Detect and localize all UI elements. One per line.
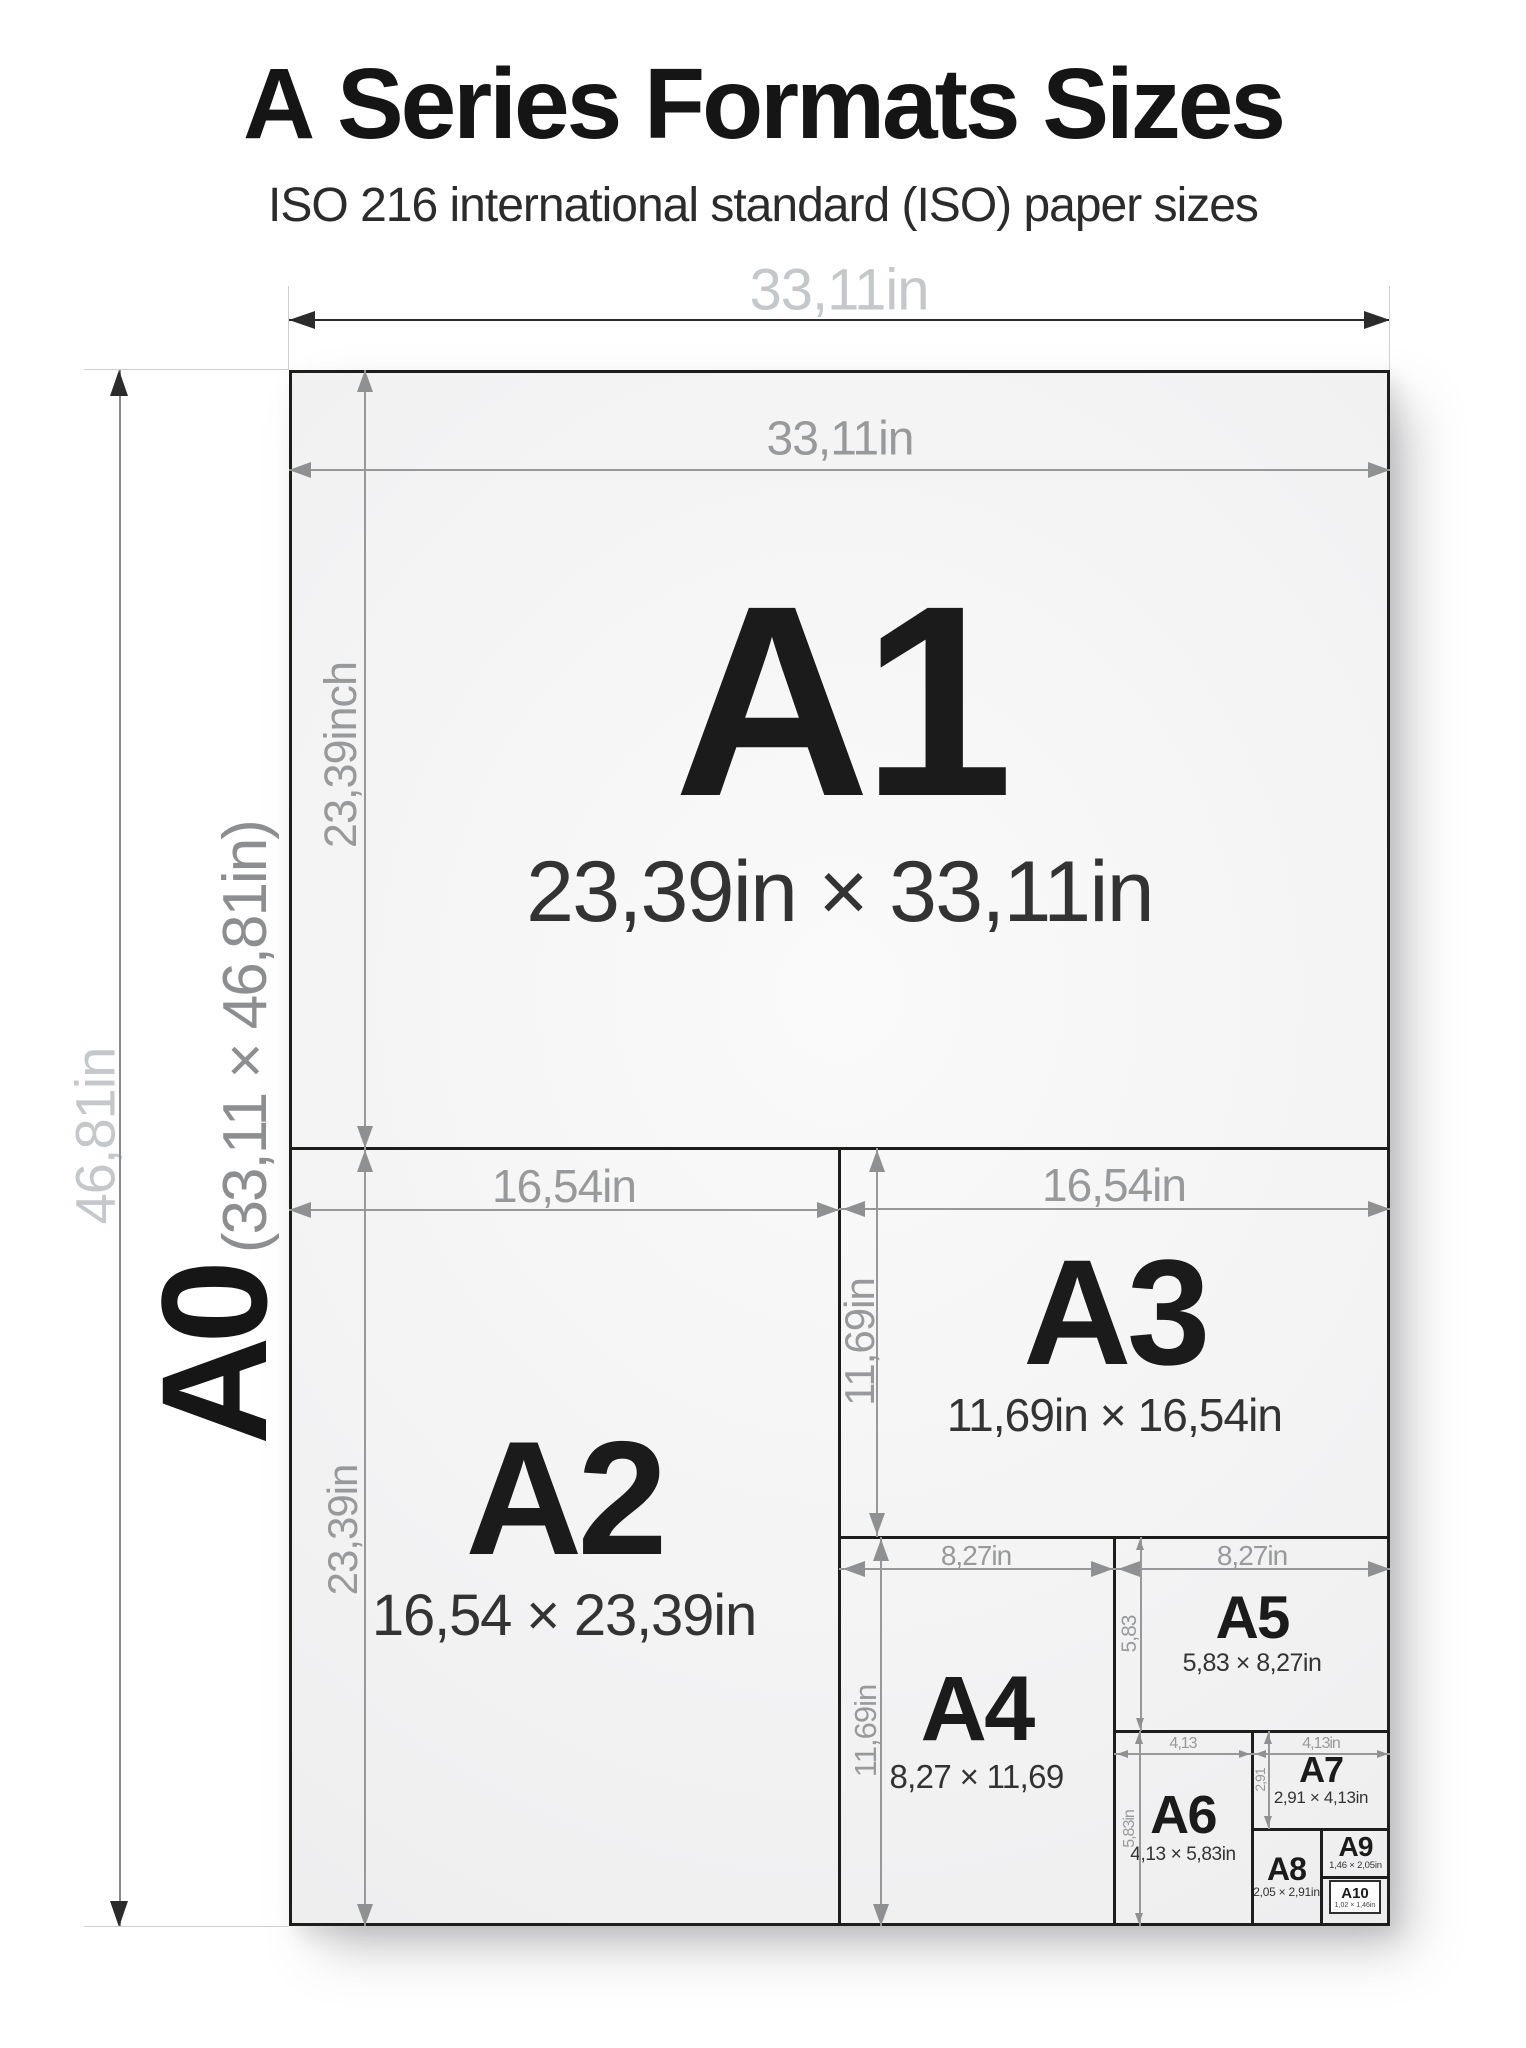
arrow-down-icon (357, 1904, 373, 1926)
a7-height-dim-label: 2,91 (1252, 1768, 1268, 1791)
arrow-down-icon (1136, 1718, 1144, 1729)
a6-height-dim-line (1139, 1731, 1141, 1926)
a3-code: A3 (1023, 1243, 1206, 1381)
arrow-right-icon (1377, 1750, 1388, 1758)
a0-size-text: (33,11 × 46,81in) (215, 821, 277, 1253)
a6-width-dim-line (1114, 1753, 1252, 1755)
arrow-down-icon (1264, 1816, 1272, 1827)
a7-width-dim-line (1252, 1753, 1390, 1755)
a3-width-dim-line (839, 1208, 1390, 1210)
arrow-left-icon (1117, 1750, 1128, 1758)
a9-code: A9 (1338, 1834, 1372, 1860)
a1-width-dim-label: 33,11in (767, 412, 914, 467)
a6-height-dim-label: 5,83in (1121, 1810, 1139, 1848)
a1-height-dim-label: 23,39inch (315, 662, 367, 848)
arrow-down-icon (357, 1126, 373, 1148)
a5-height-dim-label: 5,83 (1118, 1616, 1142, 1653)
a-series-diagram: A Series Formats Sizes ISO 216 internati… (0, 0, 1526, 2048)
a10-region: A10 1,02 × 1,46in (1329, 1880, 1381, 1914)
a7-width-dim-label: 4,13in (1302, 1735, 1340, 1753)
arrow-right-icon (1091, 1561, 1113, 1577)
a2-region: A2 16,54 × 23,39in (289, 1148, 839, 1926)
arrow-right-icon (1239, 1750, 1250, 1758)
title-letter-a: A (243, 48, 312, 160)
arrow-left-icon (289, 1202, 311, 1218)
a2-width-dim-line (289, 1209, 839, 1211)
extension-line (84, 369, 289, 370)
a6-code: A6 (1150, 1791, 1216, 1841)
arrow-up-icon (873, 1539, 889, 1561)
arrow-left-icon (289, 462, 311, 478)
a8-region: A8 2,05 × 2,91in (1252, 1829, 1321, 1926)
a8-code: A8 (1267, 1855, 1306, 1884)
a2-size-text: 16,54 × 23,39in (372, 1583, 756, 1650)
a5-size-text: 5,83 × 8,27in (1183, 1649, 1322, 1678)
a1-size-text: 23,39in × 33,11in (526, 843, 1153, 942)
arrow-left-icon (843, 1561, 865, 1577)
arrow-left-icon (843, 1201, 865, 1217)
a1-region: A1 23,39in × 33,11in (289, 370, 1390, 1148)
a0-height-dim-label: 46,81in (63, 1048, 128, 1225)
a7-code: A7 (1299, 1753, 1343, 1786)
title-rest: Series Formats Sizes (312, 48, 1283, 160)
arrow-left-icon (289, 311, 315, 329)
a0-width-dim-label: 33,11in (750, 257, 929, 324)
a2-code: A2 (465, 1424, 662, 1573)
a0-width-dim-line (289, 319, 1390, 321)
a0-code: A0 (139, 1267, 289, 1445)
a4-height-dim-line (880, 1537, 882, 1926)
arrow-down-icon (869, 1513, 885, 1535)
arrow-left-icon (1255, 1750, 1266, 1758)
extension-line (84, 1926, 289, 1927)
a1-code: A1 (674, 576, 1005, 826)
a6-width-dim-label: 4,13 (1169, 1735, 1196, 1753)
arrow-down-icon (873, 1904, 889, 1926)
arrow-down-icon (110, 1901, 128, 1927)
a2-width-dim-label: 16,54in (492, 1159, 636, 1213)
a3-size-text: 11,69in × 16,54in (947, 1389, 1282, 1442)
a4-height-dim-label: 11,69in (848, 1685, 884, 1777)
arrow-up-icon (1136, 1539, 1144, 1550)
arrow-up-icon (357, 1150, 373, 1172)
arrow-left-icon (1118, 1561, 1140, 1577)
a1-width-dim-line (289, 469, 1390, 471)
arrow-down-icon (1135, 1913, 1143, 1924)
a3-height-dim-line (876, 1148, 878, 1537)
arrow-up-icon (110, 370, 128, 396)
a8-size-text: 2,05 × 2,91in (1253, 1886, 1320, 1900)
a1-height-dim-line (364, 370, 366, 1148)
arrow-up-icon (869, 1150, 885, 1172)
arrow-right-icon (1368, 462, 1390, 478)
a3-width-dim-label: 16,54in (1042, 1158, 1186, 1212)
a4-size-text: 8,27 × 11,69 (889, 1758, 1063, 1796)
arrow-right-icon (1368, 1561, 1390, 1577)
arrow-up-icon (357, 370, 373, 392)
a9-size-text: 1,46 × 2,05in (1329, 1861, 1382, 1872)
a5-height-dim-line (1140, 1537, 1142, 1731)
a0-height-dim-line (119, 370, 121, 1927)
a10-size-text: 1,02 × 1,46in (1335, 1902, 1376, 1909)
a5-width-dim-line (1114, 1568, 1390, 1570)
page-title: A Series Formats Sizes (0, 52, 1526, 157)
arrow-right-icon (817, 1202, 839, 1218)
a6-size-text: 4,13 × 5,83in (1130, 1844, 1235, 1866)
a9-region: A9 1,46 × 2,05in (1321, 1829, 1390, 1877)
a7-height-dim-line (1268, 1731, 1270, 1829)
a4-code: A4 (920, 1667, 1032, 1752)
page-subtitle: ISO 216 international standard (ISO) pap… (0, 178, 1526, 233)
a2-height-dim-line (364, 1148, 366, 1926)
a10-code: A10 (1341, 1886, 1369, 1901)
a0-series-label: A0 (33,11 × 46,81in) (139, 821, 289, 1445)
arrow-up-icon (1135, 1733, 1143, 1744)
arrow-right-icon (1364, 311, 1390, 329)
a7-size-text: 2,91 × 4,13in (1274, 1788, 1368, 1808)
a5-code: A5 (1215, 1590, 1288, 1645)
extension-line (288, 286, 289, 370)
arrow-up-icon (1264, 1733, 1272, 1744)
arrow-right-icon (1368, 1201, 1390, 1217)
extension-line (1389, 286, 1390, 370)
a2-height-dim-label: 23,39in (319, 1465, 367, 1596)
